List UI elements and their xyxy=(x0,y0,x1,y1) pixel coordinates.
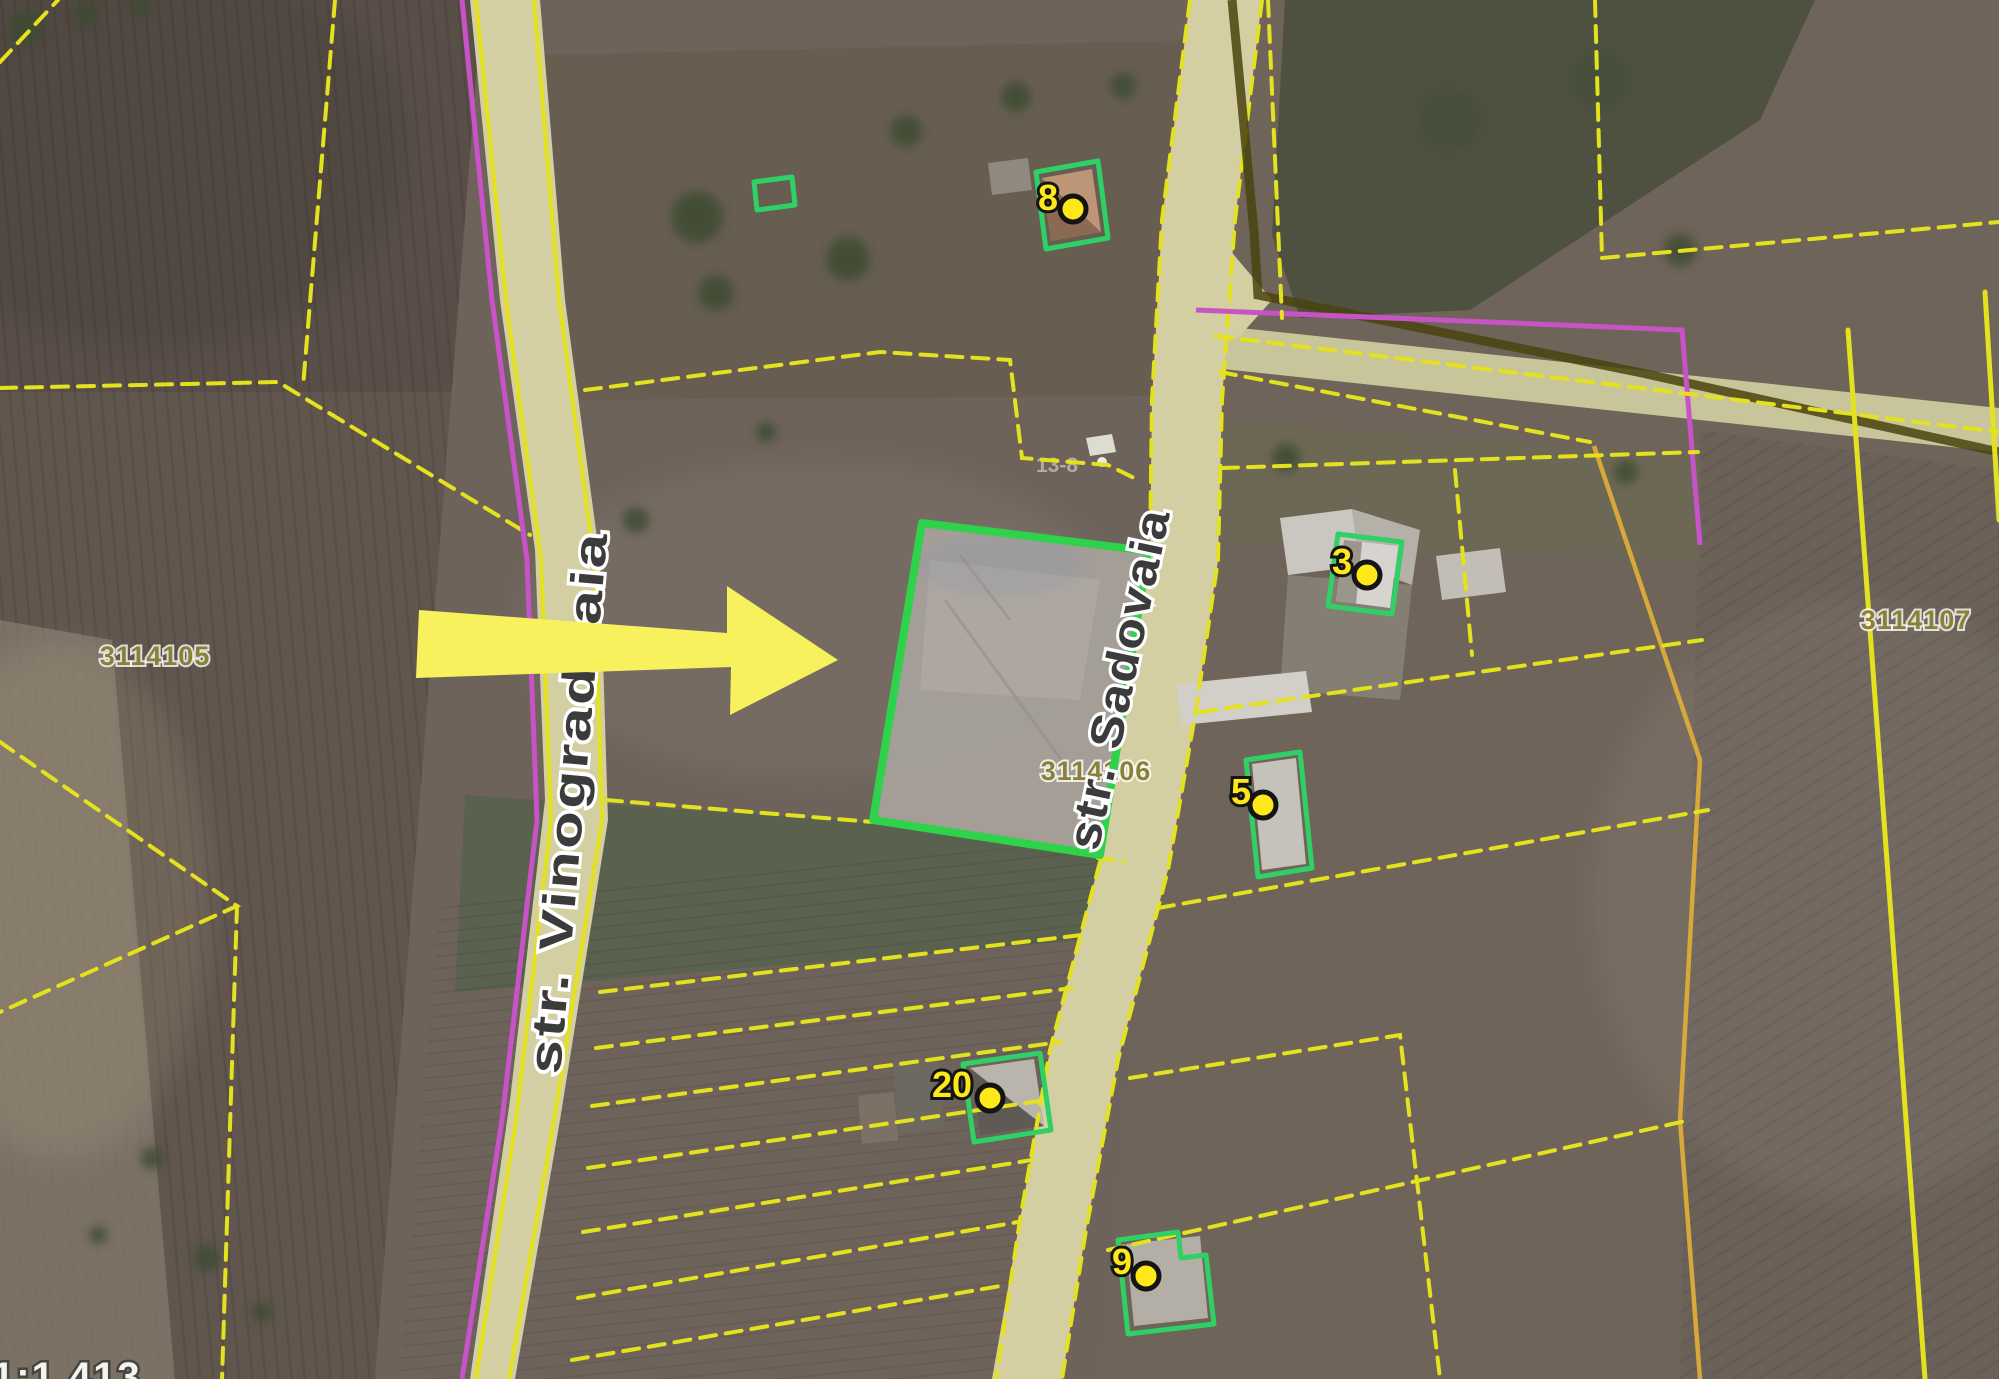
marker-number: 8 xyxy=(1038,177,1058,218)
basemap-label: 13-8 xyxy=(1036,454,1078,477)
building-shed-e xyxy=(1436,548,1506,600)
marker-dot[interactable] xyxy=(1250,792,1276,818)
map-viewport[interactable]: 13-8 xyxy=(0,0,1999,1379)
map-svg: 13-8 xyxy=(0,0,1999,1379)
marker-dot[interactable] xyxy=(1060,196,1086,222)
marker-number: 5 xyxy=(1231,771,1251,812)
marker-dot[interactable] xyxy=(977,1085,1003,1111)
building-shed-n xyxy=(988,158,1032,195)
marker-number: 3 xyxy=(1332,541,1352,582)
parcel-id-3114107: 3114107 xyxy=(1861,605,1972,635)
building-ruin-b xyxy=(858,1092,898,1144)
map-scale-label: 1:1 413 xyxy=(0,1355,142,1379)
marker-number: 20 xyxy=(932,1064,972,1105)
parcel-id-3114105: 3114105 xyxy=(100,641,211,671)
marker-dot[interactable] xyxy=(1133,1263,1159,1289)
marker-number: 9 xyxy=(1112,1241,1132,1282)
marker-dot[interactable] xyxy=(1354,562,1380,588)
